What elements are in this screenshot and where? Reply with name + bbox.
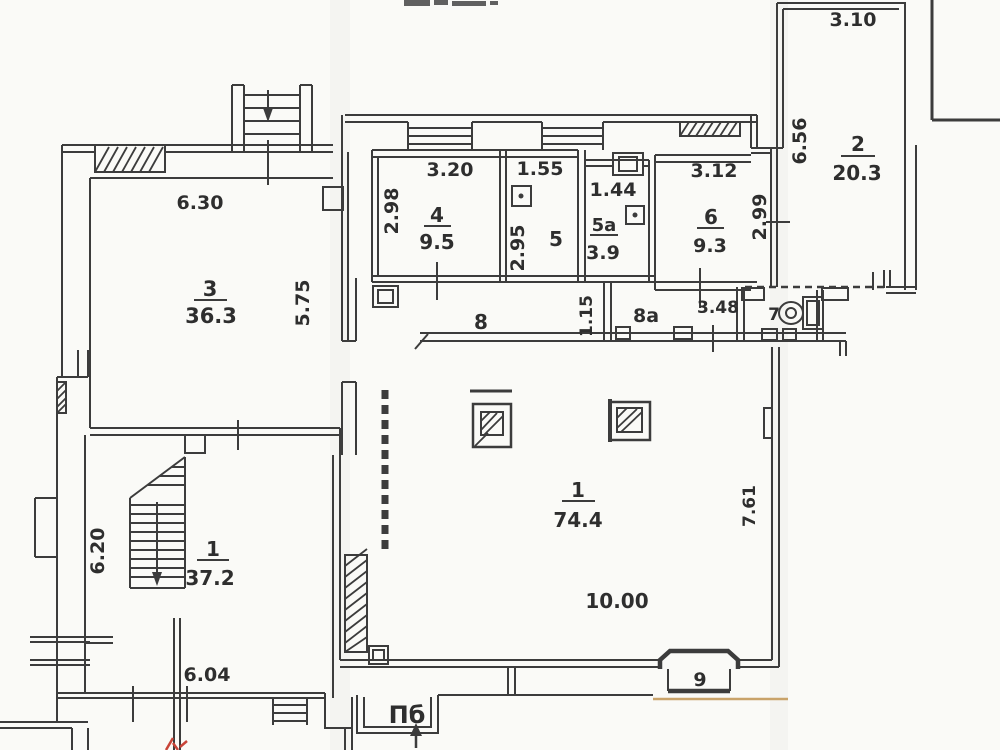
dim-corridor8a-width: 3.48 (697, 298, 739, 318)
room-2-area: 20.3 (832, 161, 881, 185)
room-8a-number: 8a (633, 305, 659, 327)
room-5-number: 5 (549, 227, 563, 251)
room-5a-number: 5a (592, 215, 617, 236)
room-6-number: 6 (704, 205, 718, 229)
room-6-area: 9.3 (693, 235, 727, 257)
dim-room2-width: 3.10 (830, 9, 877, 31)
room-8-number: 8 (474, 310, 488, 334)
dim-room2-height: 6.56 (789, 118, 811, 165)
dim-room5a-width: 1.44 (590, 179, 637, 201)
dim-room5-width: 1.55 (517, 158, 564, 180)
dim-room3-width: 6.30 (177, 192, 224, 214)
room-7-number: 7 (768, 305, 780, 325)
room-3-number: 3 (203, 277, 218, 301)
room-1-stair-area: 37.2 (185, 566, 234, 590)
floor-plan-scan: 6.30 3 36.3 5.75 3.20 2.98 4 9.5 1.55 2.… (0, 0, 1000, 750)
room-5a-area: 3.9 (586, 242, 620, 264)
room-4-number: 4 (430, 203, 444, 227)
room-1-stair-number: 1 (206, 537, 220, 561)
room-1-hall-area: 74.4 (553, 508, 602, 532)
room-9-number: 9 (693, 669, 706, 691)
dim-hall-width: 10.00 (585, 589, 648, 613)
floor-plan-drawing: 6.30 3 36.3 5.75 3.20 2.98 4 9.5 1.55 2.… (0, 0, 1000, 750)
dim-room3-height: 5.75 (292, 280, 314, 327)
dim-room4-height: 2.98 (381, 188, 403, 235)
room-1-hall-number: 1 (571, 478, 585, 502)
dim-room5-height: 2.95 (507, 225, 529, 272)
dim-hall-height: 7.61 (740, 485, 760, 527)
dim-stairroom-height: 6.20 (87, 528, 109, 575)
dim-corridor8-width: 1.15 (577, 295, 597, 337)
room-3-area: 36.3 (185, 304, 237, 328)
paper-background (0, 0, 1000, 750)
entrance-mark: Пб (389, 701, 426, 729)
dim-room6-height: 2.99 (749, 194, 771, 241)
dim-room6-width: 3.12 (691, 160, 738, 182)
room-4-area: 9.5 (419, 230, 454, 254)
dim-room4-width: 3.20 (427, 159, 474, 181)
dim-stairroom-width: 6.04 (184, 664, 231, 686)
room-2-number: 2 (851, 132, 865, 156)
